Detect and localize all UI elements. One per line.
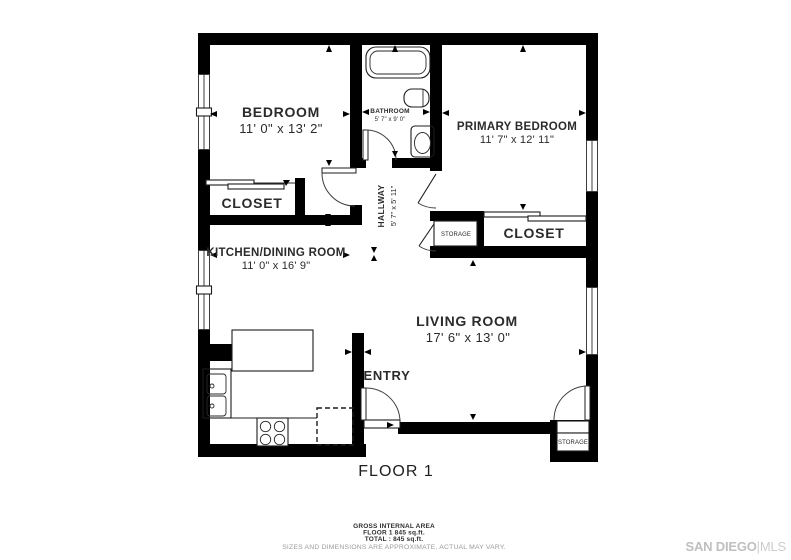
kitchen-dining-dims: 11' 0" x 16' 9" xyxy=(242,260,311,272)
storage-hall-label: STORAGE xyxy=(441,232,471,238)
bathroom-fixtures xyxy=(366,47,434,157)
primary-bedroom-label: PRIMARY BEDROOM xyxy=(457,121,577,133)
window-bedroom xyxy=(196,74,212,150)
storage-exterior-label: STORAGE xyxy=(558,440,588,446)
bathroom-label: BATHROOM xyxy=(370,108,409,115)
footer: GROSS INTERNAL AREA FLOOR 1 845 sq.ft. T… xyxy=(282,523,506,551)
door-bedroom xyxy=(322,168,356,206)
door-entry xyxy=(361,388,400,428)
hallway-label: HALLWAY xyxy=(376,185,386,228)
bedroom-dims: 11' 0" x 13' 2" xyxy=(239,121,323,136)
closet-right-label: CLOSET xyxy=(504,225,565,241)
hallway-dims: 5' 7" x 5' 11" xyxy=(389,185,398,226)
room-labels: BEDROOM 11' 0" x 13' 2" BATHROOM 5' 7" x… xyxy=(206,104,588,446)
kitchen-dining-label: KITCHEN/DINING ROOM xyxy=(206,247,345,259)
door-bathroom xyxy=(363,130,396,160)
refrigerator xyxy=(317,408,353,445)
sliding-door-closet-left xyxy=(206,180,295,189)
window-living-room xyxy=(584,287,600,355)
total-area-text: TOTAL : 845 sq.ft. xyxy=(365,536,424,543)
sliding-door-closet-right xyxy=(484,212,586,221)
living-room-dims: 17' 6" x 13' 0" xyxy=(426,330,511,345)
window-primary-bedroom xyxy=(584,140,600,192)
disclaimer-text: SIZES AND DIMENSIONS ARE APPROXIMATE, AC… xyxy=(282,544,506,551)
door-storage-exterior xyxy=(554,386,590,433)
living-room-label: LIVING ROOM xyxy=(416,313,518,329)
floor-title: FLOOR 1 xyxy=(358,463,433,480)
floor-plan-page: BEDROOM 11' 0" x 13' 2" BATHROOM 5' 7" x… xyxy=(0,0,791,560)
bathtub xyxy=(366,47,430,78)
doors xyxy=(206,130,590,433)
primary-bedroom-dims: 11' 7" x 12' 11" xyxy=(480,134,554,146)
sandiego-mls-logo: SAN DIEGO|MLS xyxy=(686,539,787,554)
bedroom-label: BEDROOM xyxy=(242,104,320,120)
kitchen-peninsula-counter xyxy=(232,330,313,371)
bathroom-dims: 5' 7" x 9' 0" xyxy=(375,117,406,123)
closet-left-label: CLOSET xyxy=(222,195,283,211)
entry-label: ENTRY xyxy=(363,368,410,383)
stove xyxy=(257,418,288,446)
floor-plan-canvas: BEDROOM 11' 0" x 13' 2" BATHROOM 5' 7" x… xyxy=(0,0,791,560)
door-primary-bedroom xyxy=(418,174,436,208)
bathroom-sink xyxy=(404,89,429,107)
window-kitchen xyxy=(196,250,212,330)
